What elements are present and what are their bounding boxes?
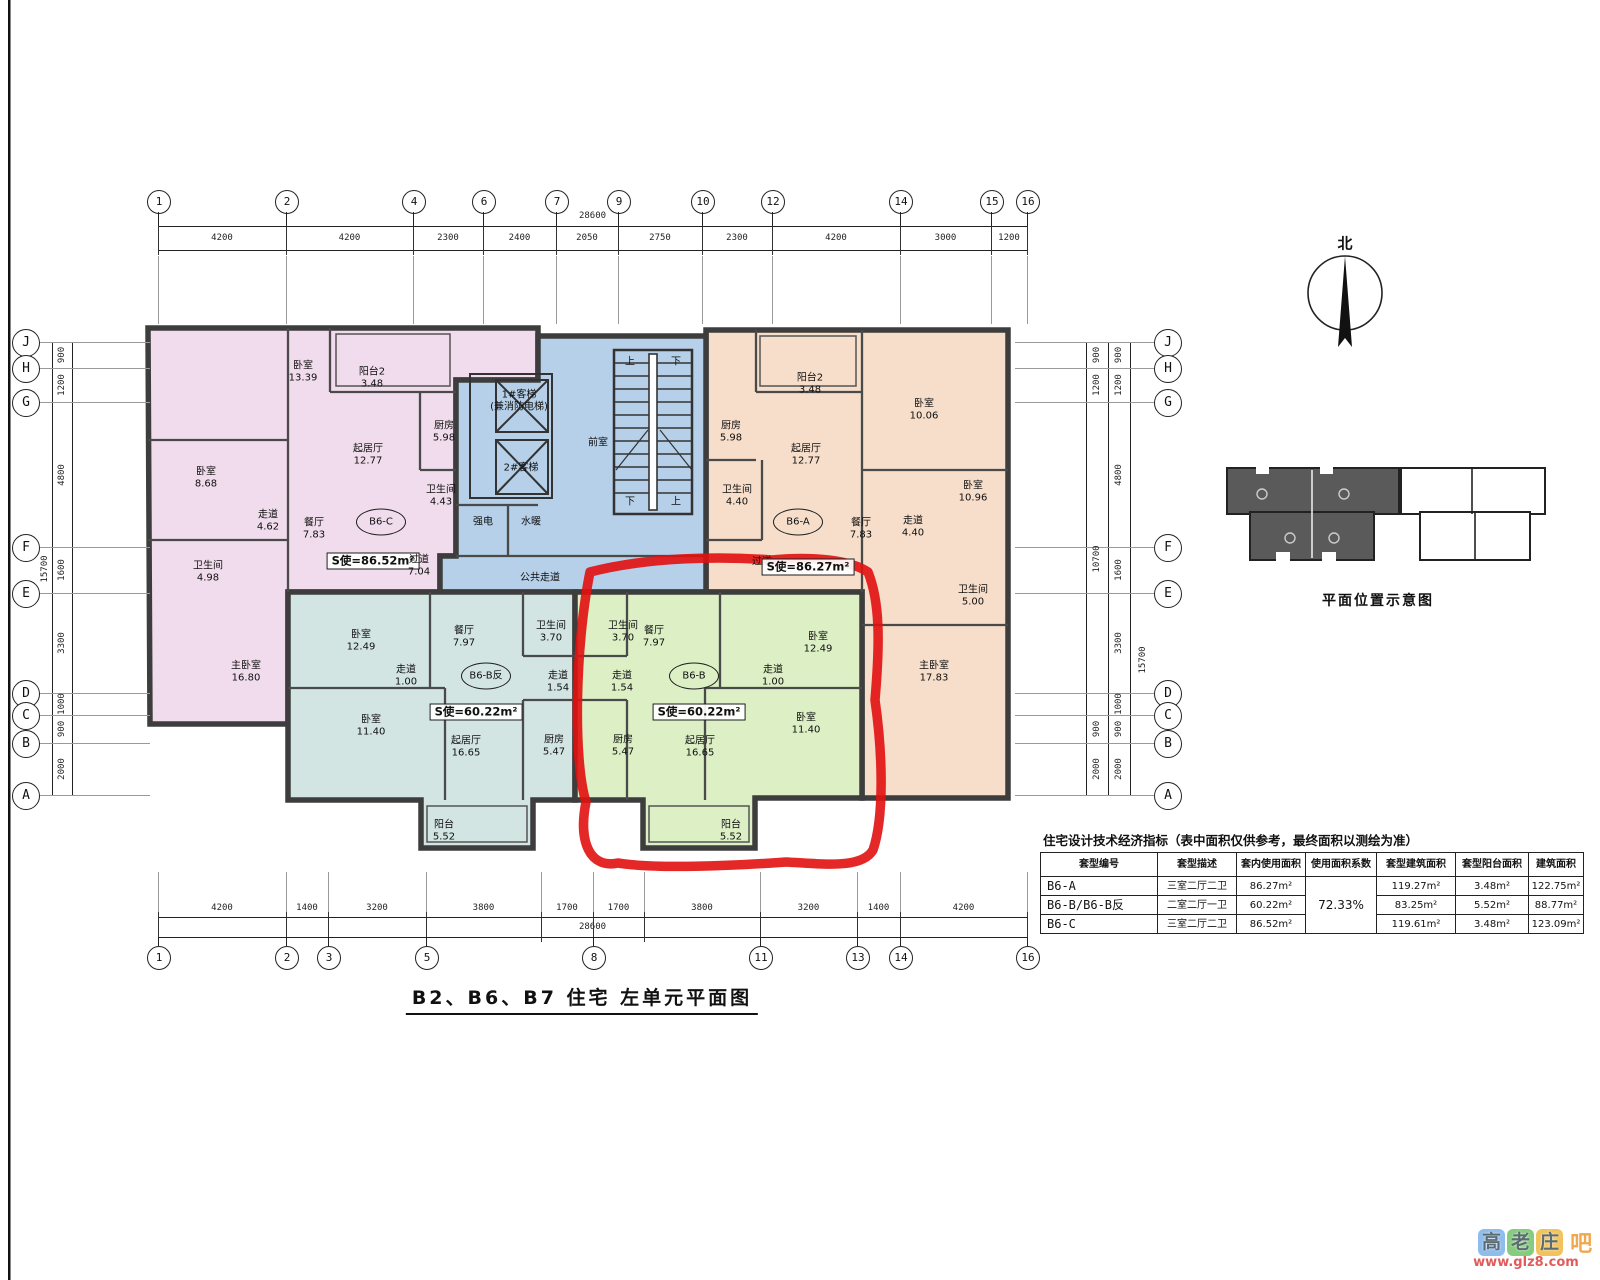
watermark-url: www.glz8.com (1446, 1255, 1600, 1270)
spec-table: 套型编号套型描述套内使用面积使用面积系数套型建筑面积套型阳台面积建筑面积B6-A… (1040, 852, 1584, 934)
table-header: 套型建筑面积 (1377, 853, 1456, 877)
table-cell: B6-C (1041, 915, 1158, 934)
table-cell: B6-B/B6-B反 (1041, 896, 1158, 915)
north-arrow-icon (1308, 256, 1382, 347)
table-cell: 3.48m² (1456, 915, 1529, 934)
watermark-char: 庄 (1536, 1229, 1563, 1256)
site-watermark: 高老庄 吧 www.glz8.com (1478, 1226, 1592, 1258)
north-label: 北 (1337, 233, 1352, 254)
table-cell: 5.52m² (1456, 896, 1529, 915)
watermark-char: 老 (1507, 1229, 1534, 1256)
location-diagram (1227, 466, 1545, 561)
watermark-suffix: 吧 (1570, 1226, 1592, 1258)
table-cell: 83.25m² (1377, 896, 1456, 915)
table-cell: 三室二厅二卫 (1158, 915, 1237, 934)
floorplan-drawing: 2860014200242004230062400720509275010230… (0, 0, 1600, 1280)
unit-b6b-outline (575, 592, 862, 848)
table-header: 套型描述 (1158, 853, 1237, 877)
table-cell: 88.77m² (1529, 896, 1584, 915)
table-cell: 86.52m² (1237, 915, 1306, 934)
table-cell: 三室二厅二卫 (1158, 877, 1237, 896)
plan-graphics (0, 0, 1600, 1280)
table-header: 套型阳台面积 (1456, 853, 1529, 877)
table-cell: 119.27m² (1377, 877, 1456, 896)
watermark-characters: 高老庄 (1478, 1232, 1565, 1251)
table-cell: 86.27m² (1237, 877, 1306, 896)
drawing-title: B2、B6、B7 住宅 左单元平面图 (406, 983, 758, 1015)
table-header: 建筑面积 (1529, 853, 1584, 877)
table-cell: 60.22m² (1237, 896, 1306, 915)
frame-left-line (8, 0, 11, 1280)
watermark-char: 高 (1478, 1229, 1505, 1256)
table-cell: 二室二厅一卫 (1158, 896, 1237, 915)
table-header: 套内使用面积 (1237, 853, 1306, 877)
table-cell: B6-A (1041, 877, 1158, 896)
table-cell: 119.61m² (1377, 915, 1456, 934)
table-header: 套型编号 (1041, 853, 1158, 877)
table-cell: 122.75m² (1529, 877, 1584, 896)
usage-ratio-cell: 72.33% (1306, 877, 1377, 934)
table-cell: 3.48m² (1456, 877, 1529, 896)
unit-b6b-mirror-outline (288, 592, 575, 848)
table-cell: 123.09m² (1529, 915, 1584, 934)
location-diagram-caption: 平面位置示意图 (1322, 590, 1434, 610)
spec-table-title: 住宅设计技术经济指标（表中面积仅供参考，最终面积以测绘为准） (1043, 830, 1418, 849)
table-header: 使用面积系数 (1306, 853, 1377, 877)
